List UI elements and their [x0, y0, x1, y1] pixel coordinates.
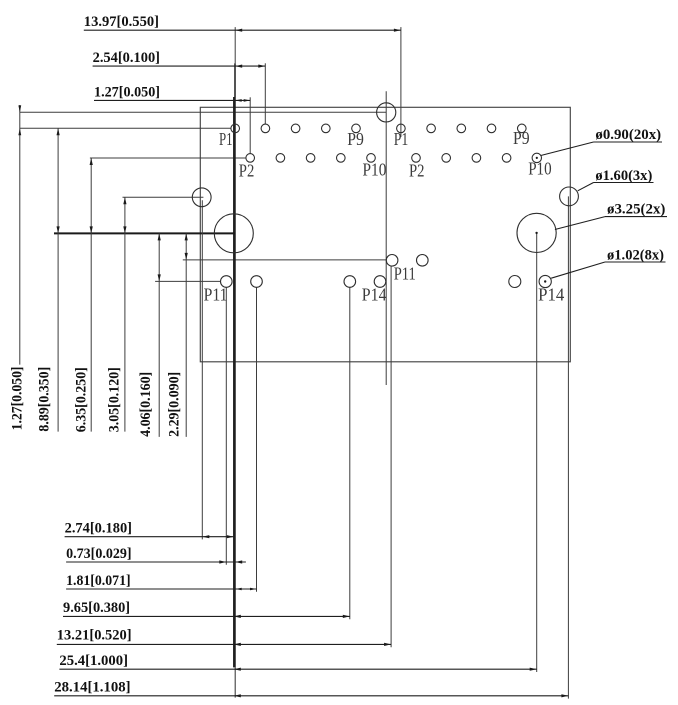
svg-text:P11: P11 — [394, 264, 416, 284]
svg-text:13.97[0.550]: 13.97[0.550] — [84, 14, 159, 30]
svg-text:P1: P1 — [394, 129, 409, 149]
svg-text:0.73[0.029]: 0.73[0.029] — [66, 546, 132, 562]
svg-text:P11: P11 — [204, 285, 228, 305]
svg-text:P1: P1 — [219, 129, 233, 149]
svg-text:P14: P14 — [362, 285, 387, 305]
svg-text:1.27[0.050]: 1.27[0.050] — [9, 367, 25, 431]
svg-text:2.74[0.180]: 2.74[0.180] — [65, 521, 132, 537]
svg-text:2.29[0.090]: 2.29[0.090] — [167, 372, 183, 437]
svg-text:P14: P14 — [538, 285, 564, 305]
svg-text:P2: P2 — [409, 161, 425, 181]
svg-text:3.05[0.120]: 3.05[0.120] — [106, 367, 122, 432]
svg-text:4.06[0.160]: 4.06[0.160] — [138, 372, 154, 437]
svg-text:ø1.02(8x): ø1.02(8x) — [607, 247, 664, 263]
svg-text:13.21[0.520]: 13.21[0.520] — [57, 628, 132, 644]
svg-text:P9: P9 — [513, 128, 530, 148]
svg-text:ø3.25(2x): ø3.25(2x) — [607, 201, 665, 217]
svg-text:P9: P9 — [347, 129, 364, 149]
svg-text:8.89[0.350]: 8.89[0.350] — [36, 367, 52, 432]
svg-text:1.81[0.071]: 1.81[0.071] — [66, 573, 131, 589]
svg-text:25.4[1.000]: 25.4[1.000] — [59, 653, 128, 669]
svg-text:P2: P2 — [239, 161, 255, 181]
svg-text:1.27[0.050]: 1.27[0.050] — [94, 84, 160, 100]
svg-text:9.65[0.380]: 9.65[0.380] — [63, 600, 130, 616]
svg-text:6.35[0.250]: 6.35[0.250] — [74, 367, 90, 432]
svg-text:2.54[0.100]: 2.54[0.100] — [93, 50, 160, 66]
svg-text:ø1.60(3x): ø1.60(3x) — [595, 168, 652, 184]
svg-text:ø0.90(20x): ø0.90(20x) — [595, 127, 661, 143]
svg-text:28.14[1.108]: 28.14[1.108] — [54, 680, 130, 696]
svg-text:P10: P10 — [363, 160, 387, 180]
svg-text:P10: P10 — [528, 159, 552, 179]
